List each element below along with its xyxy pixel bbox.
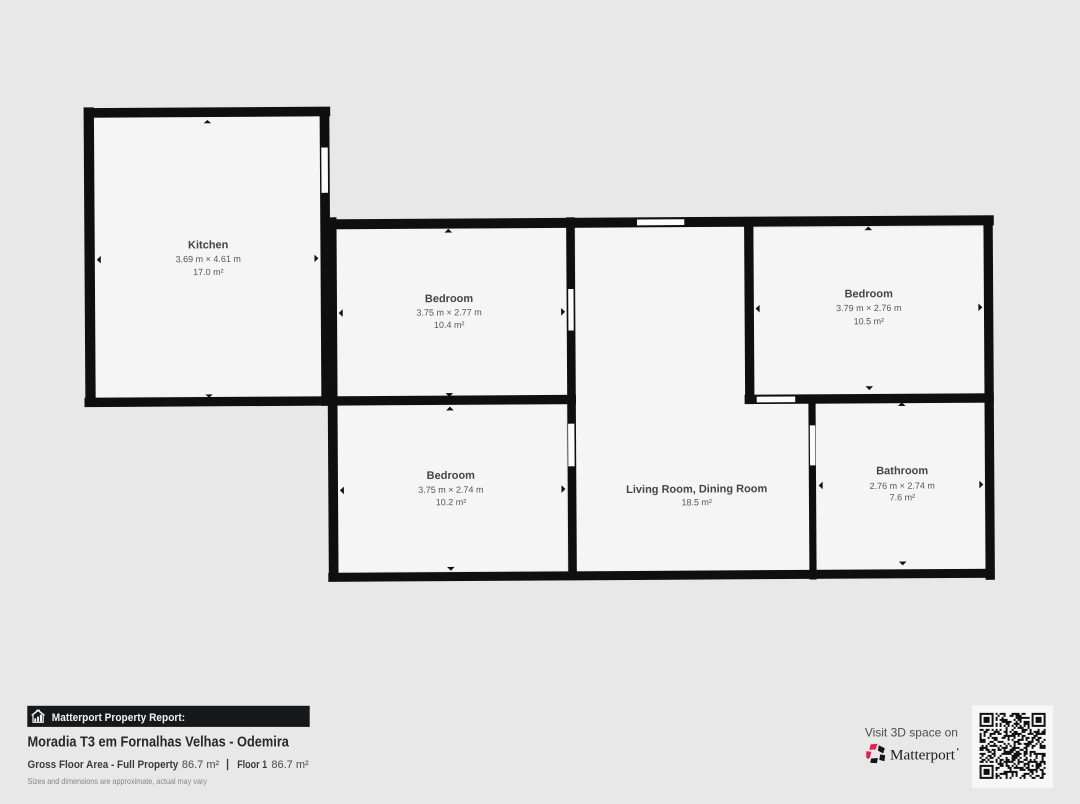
svg-text:3.75 m × 2.77 m: 3.75 m × 2.77 m	[416, 307, 481, 317]
svg-text:7.6 m²: 7.6 m²	[890, 492, 916, 502]
svg-text:Visit 3D space on: Visit 3D space on	[865, 726, 958, 740]
svg-text:2.76 m × 2.74 m: 2.76 m × 2.74 m	[870, 481, 935, 491]
svg-text:Moradia T3 em Fornalhas Velhas: Moradia T3 em Fornalhas Velhas - Odemira	[28, 734, 290, 750]
svg-text:Matterport: Matterport	[890, 746, 956, 763]
svg-text:Bedroom: Bedroom	[845, 288, 894, 300]
svg-text:10.2 m²: 10.2 m²	[436, 497, 467, 507]
svg-text:Matterport Property Report:: Matterport Property Report:	[52, 712, 185, 724]
svg-text:86.7 m²: 86.7 m²	[182, 759, 220, 771]
svg-text:10.5 m²: 10.5 m²	[854, 316, 885, 326]
svg-text:Bedroom: Bedroom	[425, 293, 474, 305]
svg-text:3.79 m × 2.76 m: 3.79 m × 2.76 m	[836, 303, 901, 313]
svg-text:Sizes and dimensions are appro: Sizes and dimensions are approximate, ac…	[28, 776, 208, 786]
svg-text:Floor 1: Floor 1	[237, 759, 267, 771]
svg-text:3.69 m × 4.61 m: 3.69 m × 4.61 m	[176, 254, 241, 264]
svg-text:Kitchen: Kitchen	[188, 239, 229, 251]
svg-text:Living Room, Dining Room: Living Room, Dining Room	[626, 483, 767, 496]
svg-text:Bathroom: Bathroom	[876, 465, 928, 477]
svg-text:10.4 m²: 10.4 m²	[434, 320, 465, 330]
svg-text:3.75 m × 2.74 m: 3.75 m × 2.74 m	[418, 485, 483, 495]
svg-text:17.0 m²: 17.0 m²	[193, 267, 224, 277]
svg-text:86.7 m²: 86.7 m²	[271, 759, 309, 771]
svg-text:Gross Floor Area - Full Proper: Gross Floor Area - Full Property	[28, 759, 180, 771]
svg-text:Bedroom: Bedroom	[427, 470, 476, 482]
svg-text:18.5 m²: 18.5 m²	[681, 497, 712, 507]
